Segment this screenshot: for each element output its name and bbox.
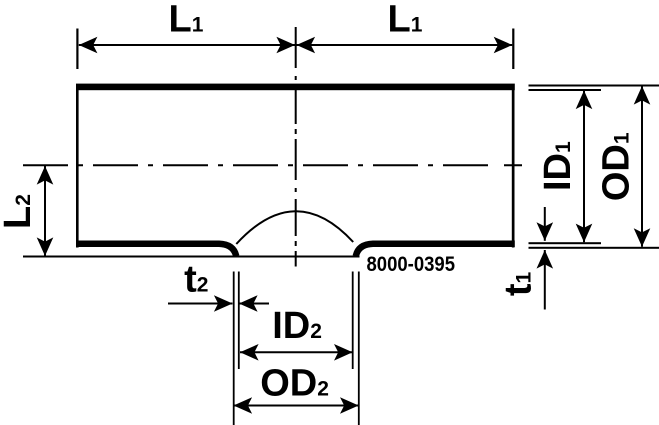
svg-text:8000-0395: 8000-0395	[367, 253, 456, 276]
